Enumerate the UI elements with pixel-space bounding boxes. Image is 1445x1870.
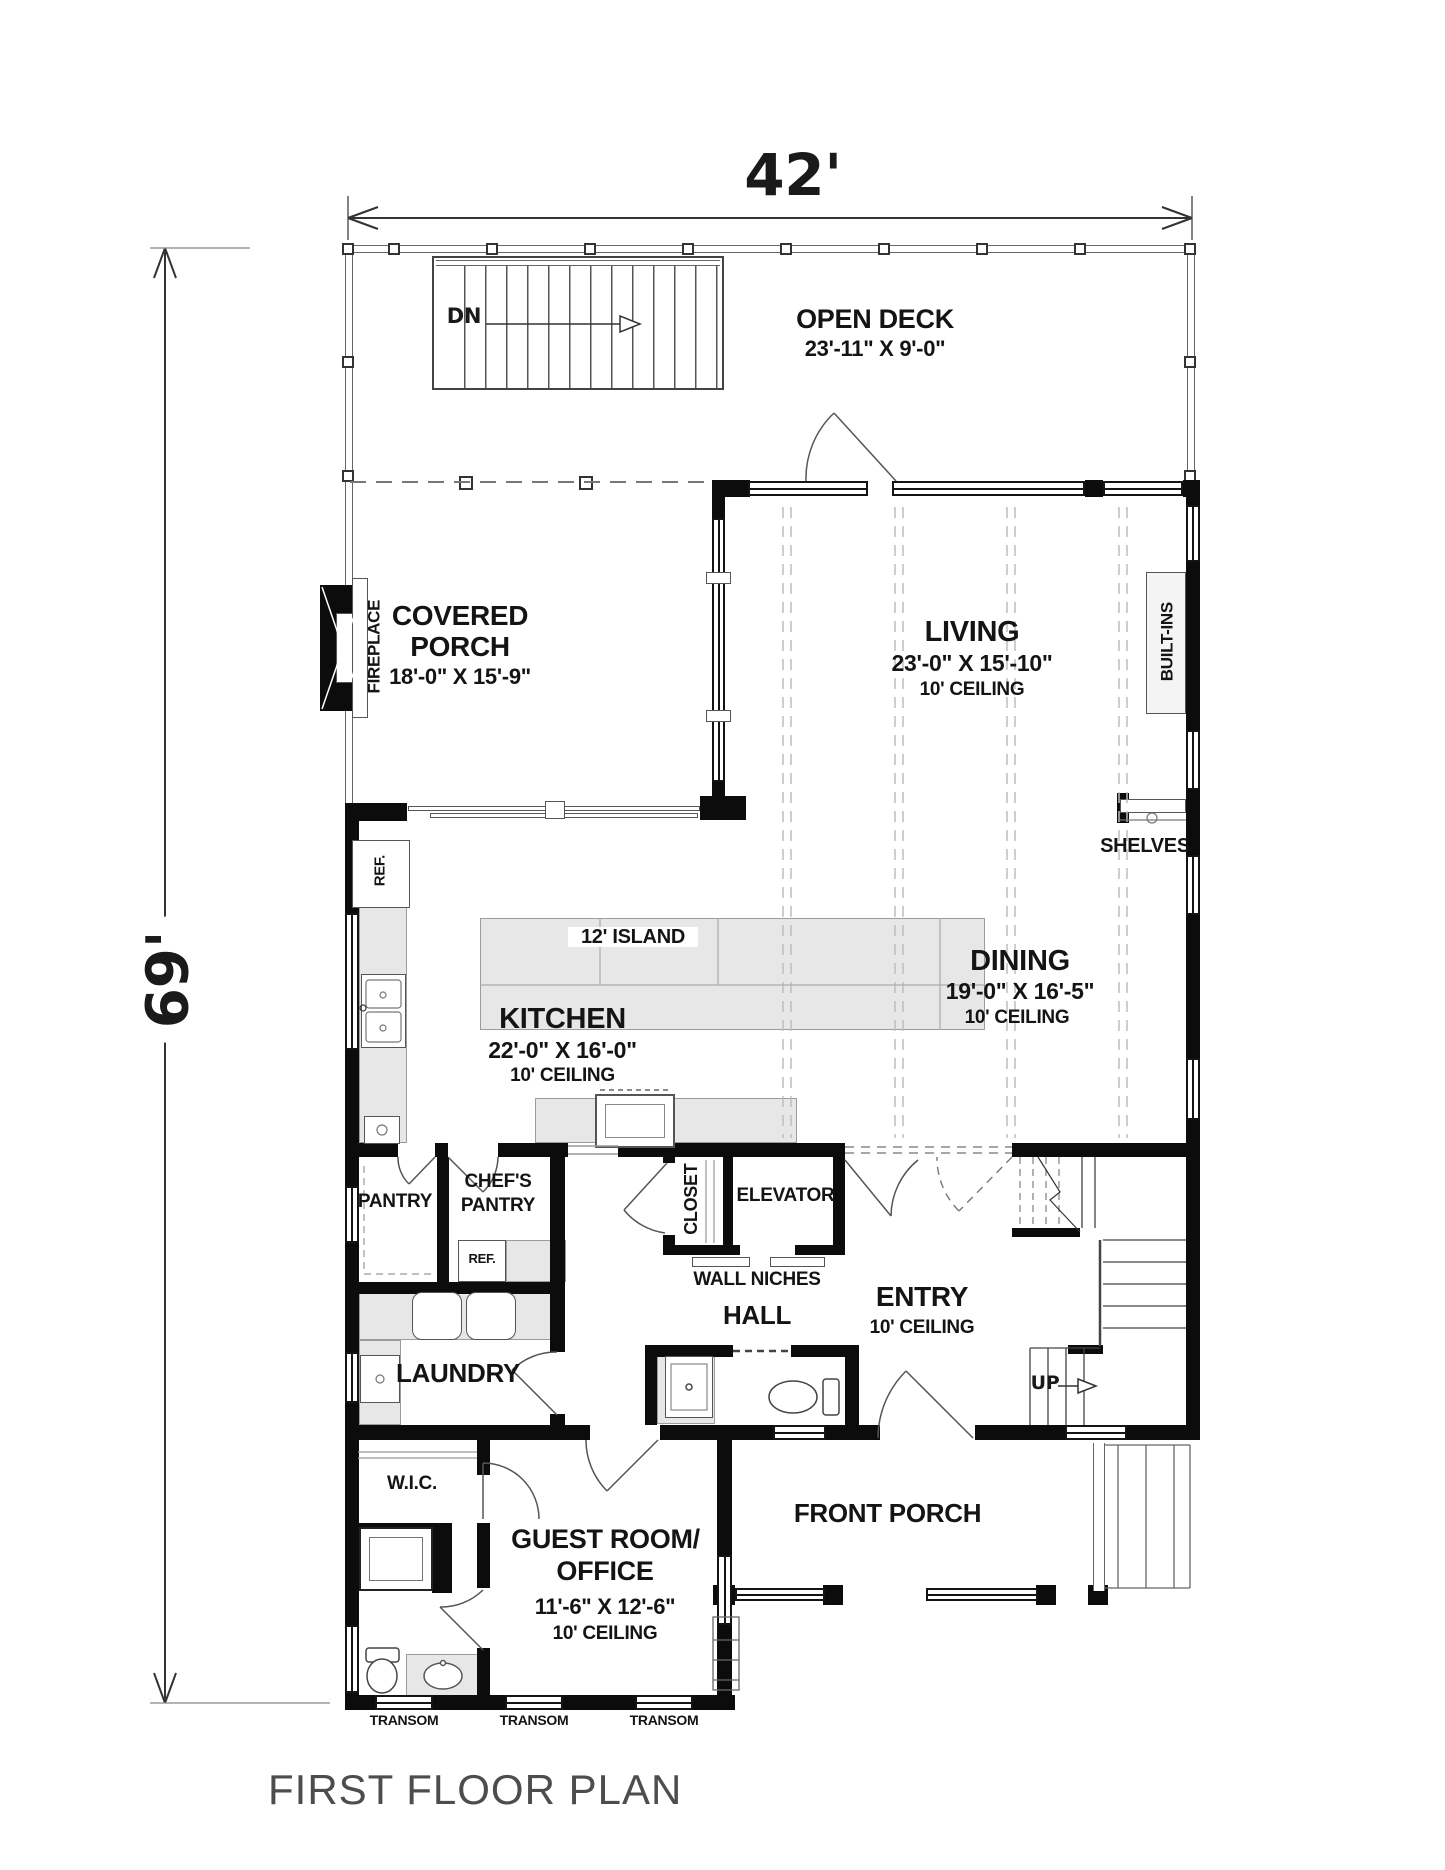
stair-up-label: UP bbox=[1028, 1374, 1062, 1393]
kitchen-ceiling: 10' CEILING bbox=[460, 1066, 665, 1085]
deck-post bbox=[388, 243, 400, 255]
dining-label: DINING bbox=[910, 947, 1130, 977]
entry-label: ENTRY bbox=[827, 1283, 1017, 1312]
deck-post bbox=[342, 243, 354, 255]
deck-post bbox=[1184, 356, 1196, 368]
deck-post bbox=[584, 243, 596, 255]
right-wall-window bbox=[1186, 730, 1200, 790]
laundry-label: LAUNDRY bbox=[358, 1360, 558, 1387]
living-size: 23'-0" X 15'-10" bbox=[847, 652, 1097, 675]
transom-label-1: TRANSOM bbox=[354, 1713, 454, 1727]
front-door-opening bbox=[880, 1425, 975, 1440]
dining-ceiling: 10' CEILING bbox=[912, 1008, 1122, 1027]
stair-stub-wall bbox=[1012, 1228, 1080, 1237]
deck-post bbox=[780, 243, 792, 255]
dim-width-label: 42' bbox=[710, 146, 876, 205]
island-label: 12' ISLAND bbox=[568, 927, 698, 947]
chefs-pantry-door-opening bbox=[448, 1143, 498, 1157]
stair-stub-wall2 bbox=[1068, 1345, 1103, 1354]
transom-label-2: TRANSOM bbox=[484, 1713, 584, 1727]
porch-screen-wall bbox=[1093, 1443, 1105, 1591]
shelves-unit bbox=[1120, 799, 1186, 813]
deck-post bbox=[976, 243, 988, 255]
pantry-door-opening bbox=[398, 1143, 435, 1157]
kitchen-label: KITCHEN bbox=[450, 1005, 675, 1035]
range-oven bbox=[605, 1104, 665, 1138]
dryer bbox=[466, 1292, 516, 1340]
open-deck-size: 23'-11" X 9'-0" bbox=[755, 338, 995, 360]
laundry-top-counter bbox=[359, 1288, 565, 1340]
dining-window bbox=[1186, 1058, 1200, 1120]
shower bbox=[359, 1527, 433, 1591]
deck-post bbox=[342, 470, 354, 482]
laundry-window bbox=[345, 1352, 359, 1403]
built-ins-label: BUILT-INS bbox=[1158, 586, 1175, 698]
right-exterior-wall bbox=[1186, 482, 1200, 1440]
deck-post bbox=[1074, 243, 1086, 255]
floor-plan: 42' 69' OPEN DECK 23'-11" X 9'-0" DN COV… bbox=[0, 0, 1445, 1870]
sliding-door-stile bbox=[545, 801, 565, 819]
bath-vanity-counter bbox=[406, 1654, 480, 1698]
entry-dining-opening bbox=[845, 1143, 1012, 1157]
living-ceiling: 10' CEILING bbox=[867, 680, 1077, 699]
wic-right-wall bbox=[477, 1440, 490, 1475]
porch-roof-post bbox=[459, 476, 473, 490]
guest-room-label2: OFFICE bbox=[505, 1558, 705, 1586]
porch-rail bbox=[735, 1588, 825, 1601]
deck-post bbox=[486, 243, 498, 255]
living-west-post-top bbox=[712, 497, 725, 518]
deck-post bbox=[1184, 243, 1196, 255]
powder-window bbox=[773, 1425, 826, 1440]
wall-niche bbox=[692, 1257, 750, 1267]
dining-size: 19'-0" X 16'-5" bbox=[900, 980, 1140, 1003]
closet-label: CLOSET bbox=[682, 1144, 700, 1254]
powder-right-wall bbox=[845, 1345, 859, 1440]
entry-window bbox=[1065, 1425, 1127, 1440]
living-north-window bbox=[892, 481, 1085, 496]
deck-door-opening bbox=[868, 480, 892, 497]
porch-door-post-left bbox=[345, 803, 407, 821]
stair-down-label: DN bbox=[442, 306, 486, 327]
front-porch-label: FRONT PORCH bbox=[765, 1500, 1010, 1527]
pocket-door-opening bbox=[733, 1345, 791, 1357]
wic-label: W.I.C. bbox=[356, 1474, 468, 1493]
kitchen-ref-label: REF. bbox=[372, 829, 387, 913]
pantry-ref-label: REF. bbox=[456, 1252, 508, 1265]
porch-post bbox=[823, 1585, 843, 1605]
window-mullion bbox=[706, 710, 731, 722]
porch-steps-right bbox=[1105, 1445, 1190, 1588]
wall-niches-label: WALL NICHES bbox=[667, 1270, 847, 1289]
porch-roof-post bbox=[579, 476, 593, 490]
north-east-corner bbox=[1183, 480, 1200, 497]
transom-window bbox=[635, 1695, 693, 1710]
stair-up-arrow bbox=[1058, 1379, 1096, 1393]
shelves-label: SHELVES bbox=[1083, 836, 1207, 856]
transom-window bbox=[505, 1695, 563, 1710]
living-west-post-bottom bbox=[712, 782, 725, 820]
transom-label-3: TRANSOM bbox=[614, 1713, 714, 1727]
wall-niche bbox=[770, 1257, 825, 1267]
deck-post bbox=[682, 243, 694, 255]
ceiling-beams bbox=[783, 507, 1127, 1138]
deck-post bbox=[878, 243, 890, 255]
guest-room-label1: GUEST ROOM/ bbox=[488, 1526, 723, 1554]
elevator-right-wall bbox=[833, 1157, 845, 1255]
dishwasher bbox=[364, 1116, 400, 1144]
chefs-pantry-label1: CHEF'S bbox=[438, 1172, 558, 1191]
transom-window bbox=[375, 1695, 433, 1710]
open-deck-label: OPEN DECK bbox=[755, 306, 995, 334]
deck-top-rail bbox=[345, 245, 1195, 253]
kitchen-window bbox=[345, 913, 359, 1050]
hall-label: HALL bbox=[687, 1302, 827, 1329]
powder-sink bbox=[665, 1356, 713, 1418]
plan-title: FIRST FLOOR PLAN bbox=[268, 1766, 682, 1814]
porch-rail bbox=[926, 1588, 1038, 1601]
dashed-door bbox=[937, 1157, 1012, 1211]
living-west-window bbox=[712, 518, 725, 782]
porch-post bbox=[1036, 1585, 1056, 1605]
kitchen-size: 22'-0" X 16'-0" bbox=[440, 1039, 685, 1062]
guest-room-size: 11'-6" X 12'-6" bbox=[485, 1596, 725, 1618]
entry-ceiling: 10' CEILING bbox=[832, 1318, 1012, 1337]
dining-window bbox=[1186, 855, 1200, 915]
fireplace-label: FIREPLACE bbox=[365, 585, 382, 709]
north-wall-post bbox=[1085, 480, 1103, 497]
closet-door-opening bbox=[663, 1163, 675, 1235]
elevator-door-opening bbox=[740, 1245, 795, 1255]
wic-door-opening bbox=[477, 1475, 490, 1523]
elevator-label: ELEVATOR bbox=[718, 1186, 853, 1205]
bath-plumbing-wall bbox=[432, 1523, 452, 1593]
deck-stair-treads bbox=[464, 266, 720, 388]
shelves-detail bbox=[1120, 813, 1186, 823]
window-mullion bbox=[706, 572, 731, 584]
deck-post bbox=[342, 356, 354, 368]
washer bbox=[412, 1292, 462, 1340]
shower-pan bbox=[369, 1537, 423, 1581]
living-north-window bbox=[1103, 481, 1183, 496]
dim-height-label: 69' bbox=[138, 917, 197, 1043]
living-north-window bbox=[748, 481, 868, 496]
guest-door-opening bbox=[590, 1425, 660, 1440]
bath-window bbox=[345, 1625, 359, 1693]
guest-room-ceiling: 10' CEILING bbox=[505, 1624, 705, 1643]
closet-elevator-divider bbox=[723, 1157, 733, 1255]
living-label: LIVING bbox=[862, 618, 1082, 648]
powder-left-wall bbox=[645, 1345, 657, 1437]
kitchen-sink bbox=[361, 974, 406, 1048]
chefs-pantry-label2: PANTRY bbox=[438, 1196, 558, 1215]
bath-right-wall2 bbox=[477, 1648, 490, 1695]
right-wall-window bbox=[1186, 505, 1200, 562]
